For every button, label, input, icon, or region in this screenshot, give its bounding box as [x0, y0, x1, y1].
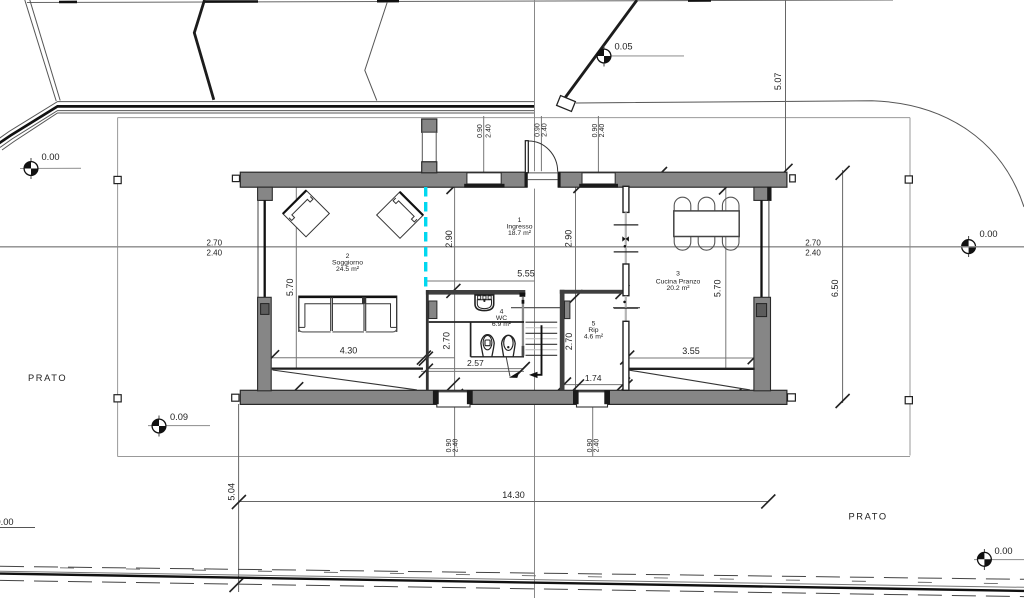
- svg-text:2.40: 2.40: [594, 439, 601, 453]
- svg-text:2.40: 2.40: [805, 249, 821, 258]
- svg-text:5.70: 5.70: [713, 280, 723, 298]
- svg-text:2.40: 2.40: [453, 439, 460, 453]
- svg-text:18.7 m²: 18.7 m²: [508, 230, 532, 237]
- svg-text:0.90: 0.90: [477, 124, 484, 138]
- svg-text:6.9 m²: 6.9 m²: [492, 321, 512, 328]
- svg-text:2.40: 2.40: [541, 123, 548, 137]
- svg-text:2.40: 2.40: [207, 249, 223, 258]
- svg-text:5.55: 5.55: [517, 269, 535, 279]
- svg-text:2.40: 2.40: [599, 124, 606, 138]
- svg-text:20.2 m²: 20.2 m²: [666, 285, 690, 292]
- svg-text:2.70: 2.70: [442, 332, 452, 350]
- svg-text:PRATO: PRATO: [28, 373, 67, 383]
- svg-text:0.00: 0.00: [0, 517, 14, 527]
- svg-text:PRATO: PRATO: [849, 512, 888, 522]
- svg-text:4.6 m²: 4.6 m²: [584, 334, 604, 341]
- svg-text:2.90: 2.90: [564, 230, 574, 248]
- svg-text:0.09: 0.09: [170, 412, 188, 422]
- svg-text:2.90: 2.90: [444, 230, 454, 248]
- svg-text:1.74: 1.74: [585, 373, 602, 383]
- svg-text:14.30: 14.30: [502, 490, 525, 500]
- svg-text:6.50: 6.50: [830, 280, 840, 298]
- svg-text:24.5 m²: 24.5 m²: [336, 266, 360, 273]
- svg-text:5.04: 5.04: [226, 483, 236, 501]
- svg-text:0.05: 0.05: [615, 42, 633, 52]
- svg-text:2.57: 2.57: [467, 358, 484, 368]
- svg-text:0.90: 0.90: [592, 124, 599, 138]
- svg-text:4.30: 4.30: [340, 346, 358, 356]
- svg-text:2.70: 2.70: [805, 238, 821, 247]
- svg-text:0.00: 0.00: [980, 229, 998, 239]
- svg-text:0.00: 0.00: [995, 546, 1013, 556]
- svg-text:2.40: 2.40: [485, 124, 492, 138]
- svg-text:3: 3: [676, 270, 680, 277]
- svg-text:2.70: 2.70: [207, 238, 223, 247]
- svg-text:3.55: 3.55: [682, 346, 700, 356]
- svg-text:5.07: 5.07: [773, 73, 783, 91]
- svg-text:0.00: 0.00: [42, 152, 60, 162]
- svg-text:2.70: 2.70: [564, 333, 574, 351]
- svg-text:5.70: 5.70: [285, 279, 295, 297]
